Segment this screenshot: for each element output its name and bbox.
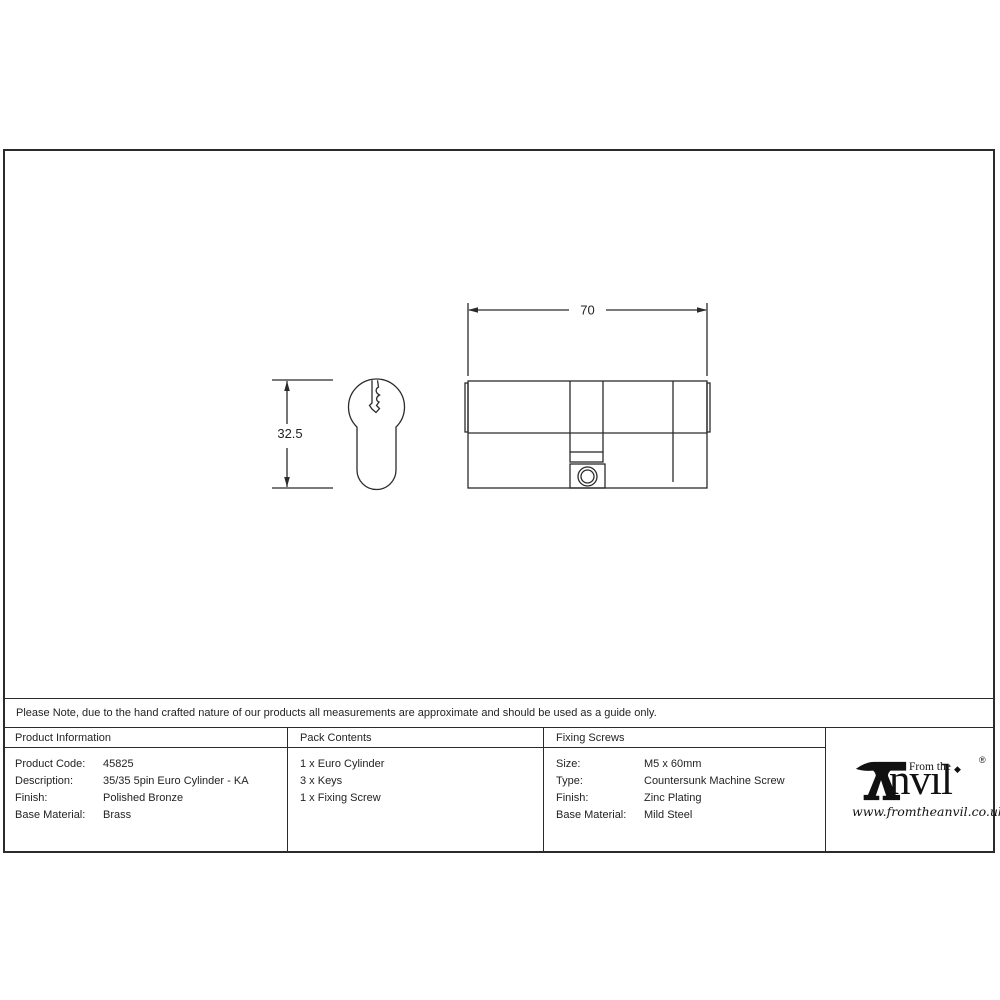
row-label: Base Material: xyxy=(556,807,644,824)
row-value: Countersunk Machine Screw xyxy=(644,775,785,787)
fixing-screws-header: Fixing Screws xyxy=(544,728,825,748)
product-information-column: Product Information Product Code:45825 D… xyxy=(5,728,287,851)
pack-item: 3 x Keys xyxy=(300,773,543,790)
spec-sheet: 32.5 70 xyxy=(3,149,995,853)
row-value: M5 x 60mm xyxy=(644,758,701,770)
height-dimension-label: 32.5 xyxy=(277,426,302,441)
table-row: Type:Countersunk Machine Screw xyxy=(556,773,825,790)
row-label: Type: xyxy=(556,773,644,790)
fixing-screws-column: Fixing Screws Size:M5 x 60mm Type:Counte… xyxy=(543,728,825,851)
row-value: 35/35 5pin Euro Cylinder - KA xyxy=(103,775,249,787)
table-row: Finish:Zinc Plating xyxy=(556,790,825,807)
table-row: Base Material:Mild Steel xyxy=(556,807,825,824)
pack-contents-header: Pack Contents xyxy=(288,728,543,748)
logo-brand-text: nvıl xyxy=(889,759,952,802)
table-row: Finish:Polished Bronze xyxy=(15,790,287,807)
height-dimension: 32.5 xyxy=(272,380,333,488)
product-information-header: Product Information xyxy=(5,728,287,748)
pack-contents-column: Pack Contents 1 x Euro Cylinder 3 x Keys… xyxy=(287,728,543,851)
table-row: Size:M5 x 60mm xyxy=(556,756,825,773)
measurement-note: Please Note, due to the hand crafted nat… xyxy=(5,698,993,728)
spec-table: Product Information Product Code:45825 D… xyxy=(5,728,993,851)
width-dimension: 70 xyxy=(468,303,707,377)
row-label: Product Code: xyxy=(15,756,103,773)
cylinder-front-view xyxy=(349,379,405,489)
row-value: 45825 xyxy=(103,758,134,770)
cylinder-side-view xyxy=(465,381,710,488)
technical-drawing-area: 32.5 70 xyxy=(5,151,993,698)
row-label: Description: xyxy=(15,773,103,790)
cylinder-technical-drawing: 32.5 70 xyxy=(250,280,730,510)
cam-band xyxy=(570,452,603,462)
right-face-tab xyxy=(707,383,710,432)
row-label: Base Material: xyxy=(15,807,103,824)
logo-website: www.fromtheanvil.co.uk xyxy=(852,804,992,819)
table-row: Base Material:Brass xyxy=(15,807,287,824)
row-label: Finish: xyxy=(15,790,103,807)
left-face-tab xyxy=(465,383,468,432)
keyhole xyxy=(370,380,380,412)
measurement-note-text: Please Note, due to the hand crafted nat… xyxy=(16,707,657,719)
from-the-anvil-logo: From the nvıl ◆ ® www.fromtheanvil.co.uk xyxy=(855,755,989,819)
width-dimension-label: 70 xyxy=(580,303,594,318)
registered-trademark-icon: ® xyxy=(979,755,986,765)
row-value: Brass xyxy=(103,809,131,821)
brand-column: From the nvıl ◆ ® www.fromtheanvil.co.uk xyxy=(825,728,993,851)
row-label: Size: xyxy=(556,756,644,773)
diamond-icon: ◆ xyxy=(954,764,961,775)
row-value: Polished Bronze xyxy=(103,792,183,804)
pack-item: 1 x Euro Cylinder xyxy=(300,756,543,773)
row-label: Finish: xyxy=(556,790,644,807)
table-row: Description:35/35 5pin Euro Cylinder - K… xyxy=(15,773,287,790)
table-row: Product Code:45825 xyxy=(15,756,287,773)
pack-item: 1 x Fixing Screw xyxy=(300,790,543,807)
row-value: Mild Steel xyxy=(644,809,692,821)
row-value: Zinc Plating xyxy=(644,792,701,804)
